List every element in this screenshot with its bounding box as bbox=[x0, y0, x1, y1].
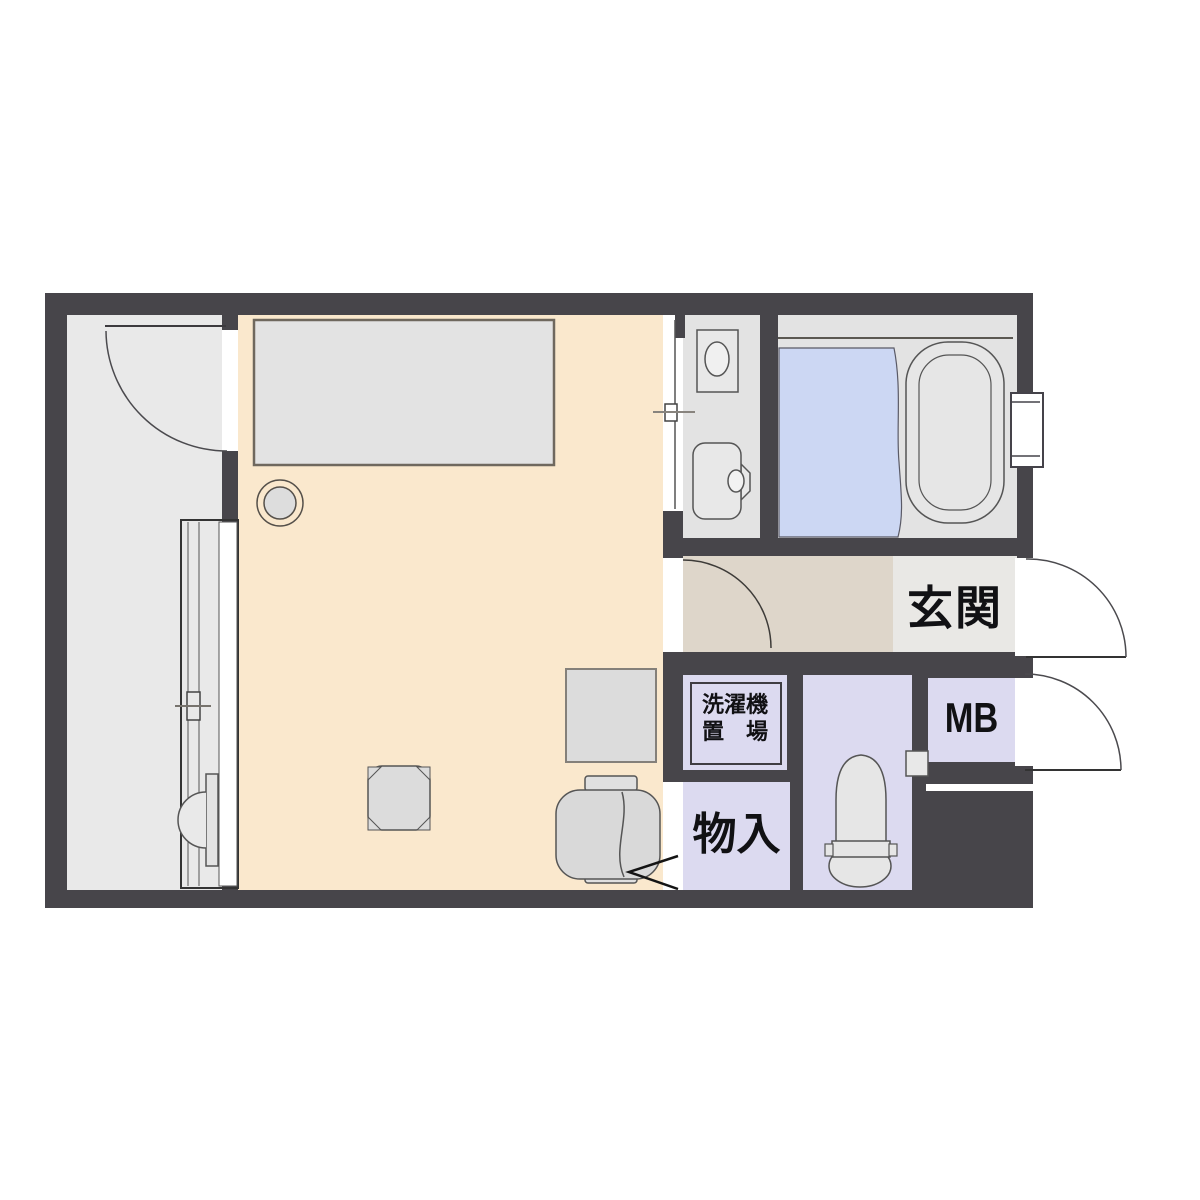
room-toilet bbox=[803, 675, 912, 890]
hall-door-opening bbox=[663, 558, 683, 652]
monoire-label: 物入 bbox=[683, 812, 790, 858]
storage-opening bbox=[663, 782, 683, 890]
wall-stub bbox=[675, 315, 685, 338]
mb-door-opening bbox=[1015, 678, 1037, 766]
mb-label: MB bbox=[936, 696, 1007, 740]
washroom-slider-opening bbox=[663, 315, 683, 511]
floor-plan: 玄関 MB 物入 洗濯機 置 場 bbox=[0, 0, 1200, 1200]
room-bathroom bbox=[778, 315, 1017, 538]
room-hall bbox=[683, 556, 893, 652]
laundry-label-line1: 洗濯機 bbox=[683, 691, 787, 718]
room-washroom bbox=[683, 315, 760, 538]
mb-door bbox=[1025, 674, 1121, 770]
laundry-label: 洗濯機 置 場 bbox=[683, 691, 787, 745]
entrance-door bbox=[1026, 559, 1126, 657]
balcony-door-opening bbox=[222, 330, 238, 451]
entrance-door-opening bbox=[1015, 558, 1037, 656]
wall-notch bbox=[926, 784, 1033, 791]
room-main bbox=[238, 315, 663, 890]
room-balcony bbox=[67, 315, 222, 890]
genkan-label: 玄関 bbox=[893, 584, 1017, 632]
laundry-label-line2: 置 場 bbox=[683, 718, 787, 745]
bathroom-window bbox=[1010, 392, 1044, 468]
